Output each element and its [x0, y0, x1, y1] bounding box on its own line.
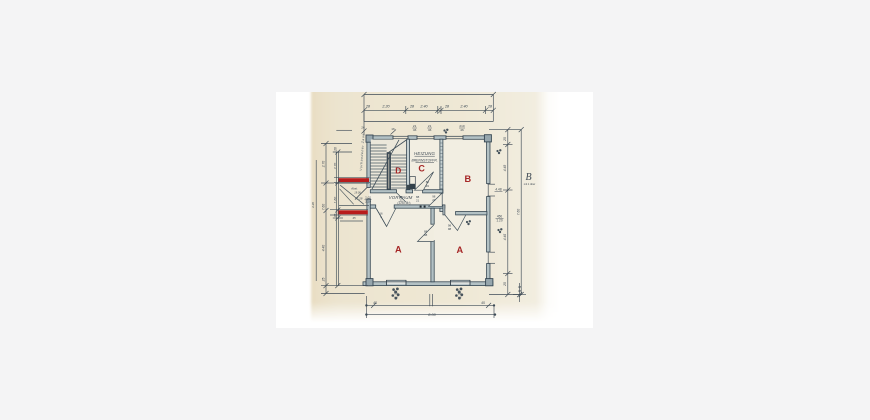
svg-text:2.20: 2.20 [365, 199, 371, 203]
svg-text:46: 46 [428, 128, 432, 132]
svg-text:2.40: 2.40 [419, 105, 428, 109]
svg-text:Abst.: Abst. [350, 187, 358, 191]
svg-text:C: C [418, 164, 425, 174]
svg-text:2.28: 2.28 [356, 196, 363, 200]
svg-text:HEIZUNG: HEIZUNG [414, 151, 436, 156]
svg-text:4.40: 4.40 [322, 245, 326, 252]
svg-text:2.70: 2.70 [333, 163, 337, 171]
svg-text:16: 16 [391, 127, 395, 131]
svg-text:4.48: 4.48 [503, 165, 507, 172]
svg-text:26: 26 [333, 147, 337, 152]
svg-text:7.60: 7.60 [516, 209, 520, 216]
svg-text:D: D [395, 166, 401, 176]
svg-text:26: 26 [333, 214, 337, 219]
svg-text:1.60: 1.60 [333, 197, 337, 204]
svg-text:A: A [456, 245, 463, 255]
svg-text:4.46: 4.46 [503, 234, 507, 241]
svg-text:B: B [464, 174, 471, 184]
svg-text:25: 25 [503, 282, 507, 287]
svg-text:2.20: 2.20 [311, 202, 315, 209]
svg-text:7.60: 7.60 [322, 204, 326, 211]
svg-text:4.48: 4.48 [495, 188, 501, 192]
svg-text:46: 46 [413, 128, 417, 132]
svg-text:45: 45 [373, 301, 377, 305]
svg-text:21: 21 [416, 198, 420, 202]
svg-text:45: 45 [352, 216, 356, 220]
svg-text:A: A [395, 245, 402, 255]
svg-text:26: 26 [361, 126, 365, 130]
svg-text:88: 88 [424, 233, 428, 237]
svg-text:25: 25 [322, 278, 326, 283]
svg-text:21: 21 [400, 198, 404, 202]
svg-text:19.06: 19.06 [354, 190, 361, 194]
svg-text:B: B [525, 172, 531, 183]
svg-text:46: 46 [460, 128, 464, 132]
svg-text:45: 45 [481, 301, 485, 305]
svg-text:1.20: 1.20 [496, 219, 502, 223]
svg-text:BRENNSTOFFR.: BRENNSTOFFR. [411, 159, 437, 163]
svg-text:mit 1 über: mit 1 über [524, 182, 536, 186]
svg-text:25: 25 [503, 137, 507, 142]
svg-text:98: 98 [448, 227, 452, 231]
svg-text:21: 21 [432, 198, 436, 202]
svg-text:2.70: 2.70 [322, 161, 326, 169]
svg-text:19: 19 [426, 184, 430, 188]
svg-text:8.00: 8.00 [428, 313, 436, 317]
svg-text:2.40: 2.40 [459, 105, 468, 109]
svg-text:2.20: 2.20 [381, 105, 390, 109]
